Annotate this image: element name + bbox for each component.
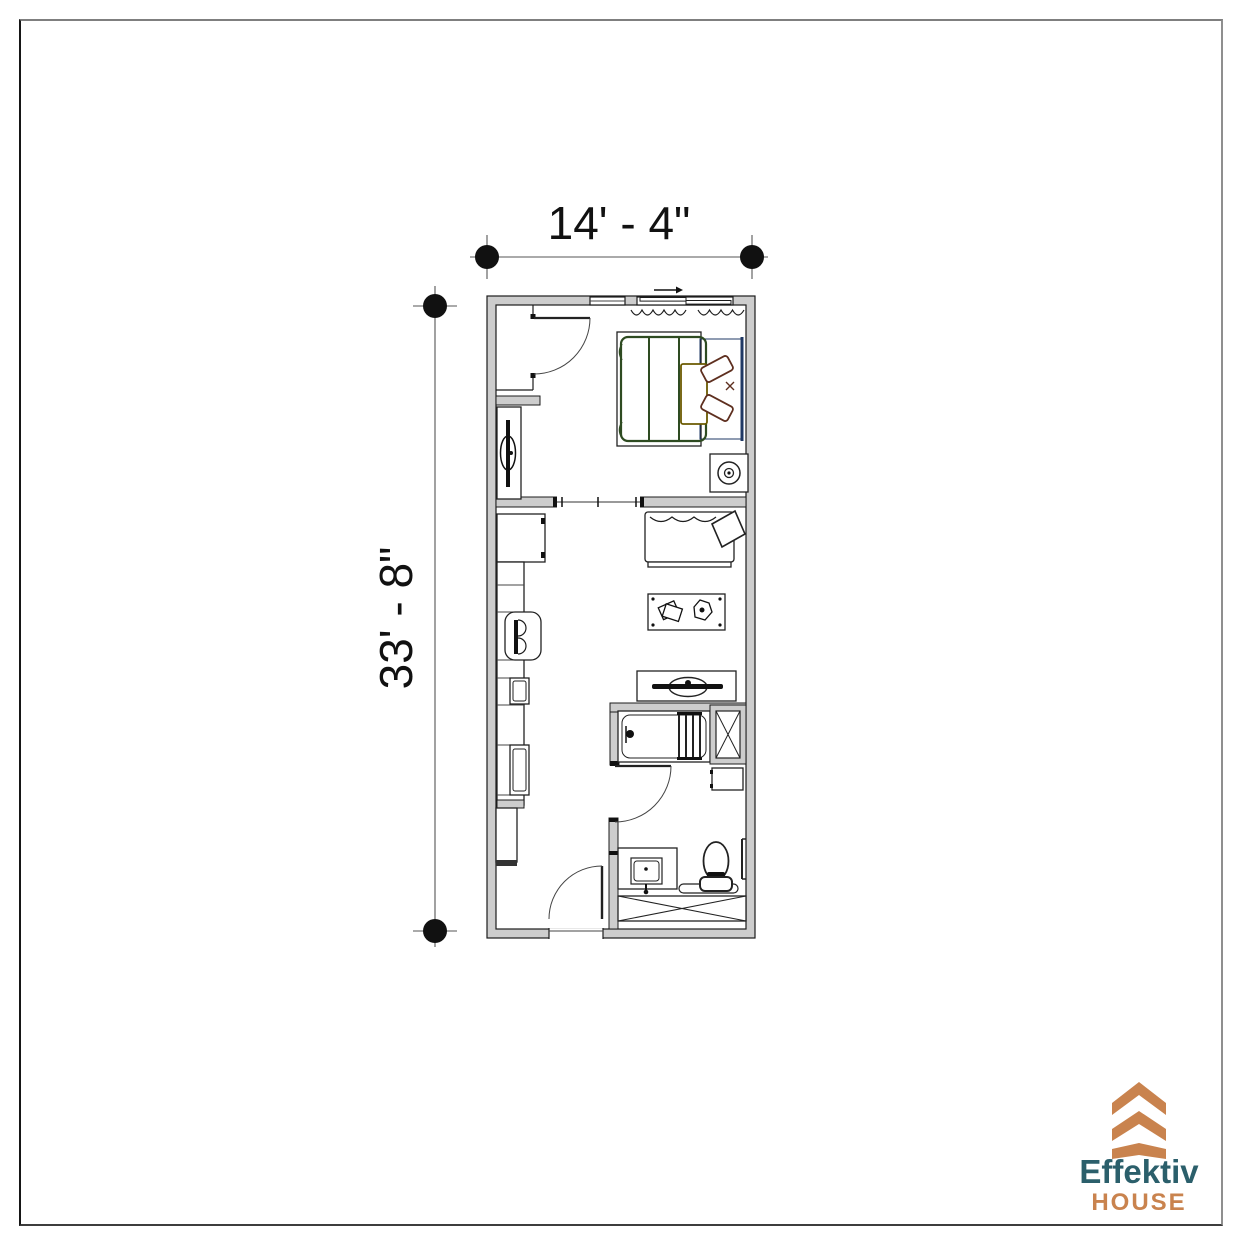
kitchen-sink: [510, 678, 529, 704]
bathtub: [618, 711, 710, 762]
laundry-chase: [710, 705, 746, 764]
width-dimension-label: 14' - 4": [548, 197, 691, 249]
tv-dresser: [497, 407, 521, 499]
dishwasher: [510, 745, 529, 795]
wall-shelf: [710, 768, 743, 790]
nightstand-with-lamp: [710, 454, 748, 492]
vanity: [618, 848, 677, 894]
counter-end-panel: [497, 800, 524, 808]
closet-shelf: [496, 396, 540, 405]
dim-marker: [740, 245, 764, 269]
living-room: [637, 511, 745, 701]
refrigerator: [497, 514, 545, 562]
logo: Effektiv HOUSE: [1079, 1082, 1199, 1216]
double-bed: [617, 332, 742, 446]
floor-plan-canvas: 14' - 4" 33' - 8": [0, 0, 1242, 1242]
tv-console: [637, 671, 736, 701]
curtains: [631, 310, 744, 315]
entry: [549, 866, 602, 919]
storage-unit: [618, 896, 746, 921]
kitchen: [496, 514, 545, 866]
bedroom-partition: [496, 496, 746, 508]
window: [590, 297, 625, 305]
dimension-top: 14' - 4": [470, 197, 768, 279]
base-cabinet: [496, 808, 517, 866]
entry-opening: [549, 928, 603, 939]
dimension-left: 33' - 8": [370, 286, 457, 947]
logo-brand-text: Effektiv: [1079, 1153, 1199, 1190]
bathroom: [615, 705, 746, 921]
height-dimension-label: 33' - 8": [370, 547, 422, 690]
closet-door: [534, 318, 590, 374]
coffee-table: [648, 594, 725, 630]
logo-house-icon: [1112, 1082, 1166, 1159]
entry-door: [549, 866, 602, 919]
dim-marker: [423, 919, 447, 943]
dim-marker: [423, 294, 447, 318]
bedroom: [497, 332, 748, 499]
toilet: [700, 842, 732, 891]
bathroom-door: [615, 766, 671, 822]
slide-arrow: [654, 287, 683, 294]
closet: [496, 305, 540, 405]
dim-marker: [475, 245, 499, 269]
stove: [505, 612, 541, 660]
floor-plan-sheet: 14' - 4" 33' - 8": [0, 0, 1242, 1242]
logo-suffix-text: HOUSE: [1091, 1189, 1186, 1216]
sofa: [645, 511, 745, 567]
